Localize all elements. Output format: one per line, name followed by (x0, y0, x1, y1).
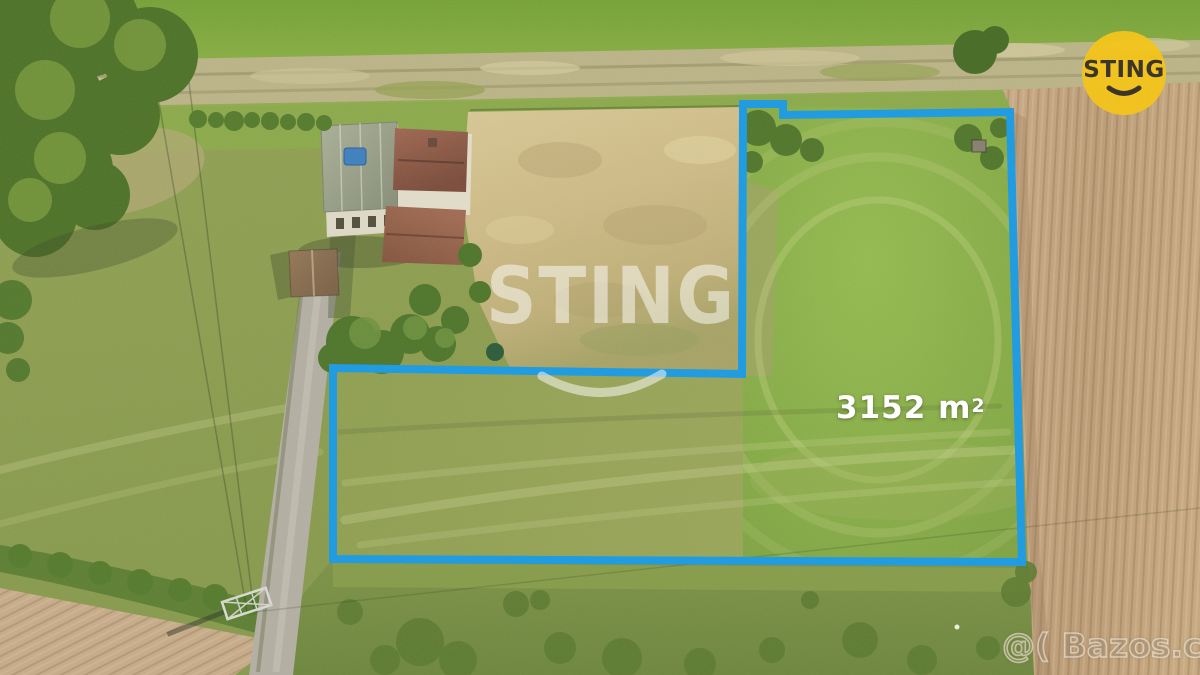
area-exponent: 2 (971, 395, 985, 417)
plot-area-label: 3152 m2 (836, 390, 986, 426)
aerial-listing-photo: STING STING 3152 m2 @( Bazos.cz (0, 0, 1200, 675)
area-unit: m (938, 390, 971, 426)
sting-watermark-text: STING (486, 258, 736, 336)
sting-logo-text: STING (1078, 57, 1170, 83)
bazos-watermark: @( Bazos.cz (1002, 626, 1200, 665)
area-value: 3152 (836, 390, 926, 426)
sting-logo-badge: STING (1078, 27, 1170, 119)
sting-watermark-smile-icon (532, 362, 672, 412)
